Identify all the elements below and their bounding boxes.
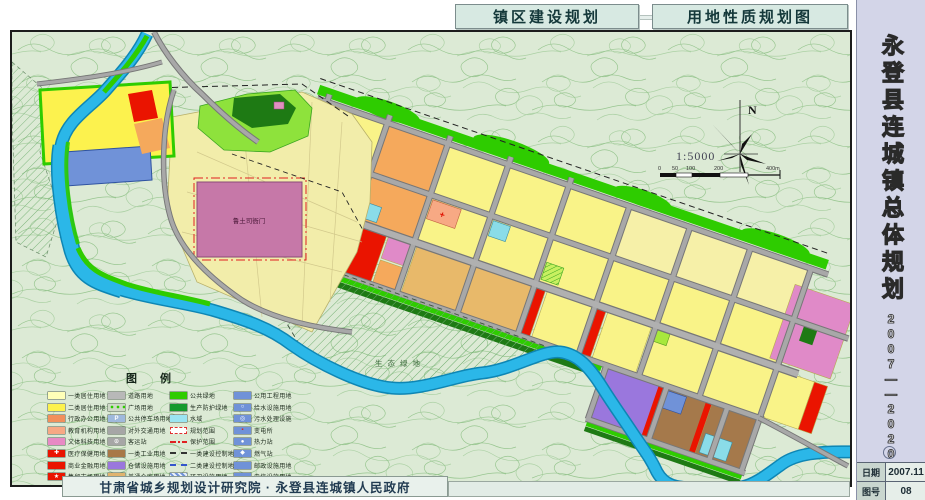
legend-column-3: 公共绿地生产防护绿地水域规划范围保护范围一类建设控制地带二类建设控制地带环卫设施… [170, 392, 240, 485]
legend-swatch [170, 427, 187, 434]
sheet-number-value: 08 [886, 482, 925, 500]
legend-item-label: 客运站 [128, 437, 147, 446]
legend-item: 保护范围 [170, 438, 240, 445]
legend-swatch [48, 404, 65, 411]
legend-item: ○给水设施用地 [234, 404, 311, 411]
legend-swatch [108, 427, 125, 434]
legend-swatch-icon: ★ [54, 474, 59, 480]
title-left-box: 镇区建设规划 [455, 4, 639, 29]
legend-item-label: 水域 [190, 414, 203, 423]
legend-swatch [108, 450, 125, 457]
legend-item-label: 燃气站 [254, 449, 273, 458]
date-label: 日期 [857, 463, 886, 481]
legend-item-label: 文体科技用地 [68, 437, 106, 446]
legend-swatch: ✚ [48, 450, 65, 457]
title-right-box: 用地性质规划图 [652, 4, 848, 29]
legend-swatch [48, 462, 65, 469]
legend-item: 行政办公用地 [48, 415, 106, 422]
legend-item-label: 仓储设施用地 [128, 461, 166, 470]
legend-item: 一类居住用地 [48, 392, 106, 399]
north-label: N [748, 103, 757, 117]
svg-text:200: 200 [714, 166, 723, 172]
svg-text:0: 0 [658, 166, 661, 172]
legend-swatch [108, 392, 125, 399]
legend-swatch: ◎ [234, 415, 251, 422]
legend-item: 水域 [170, 415, 240, 422]
legend-swatch [48, 427, 65, 434]
legend-swatch [170, 392, 187, 399]
legend-item-label: 二类建设控制地带 [190, 461, 240, 470]
legend-swatch-icon: ◆ [240, 450, 245, 456]
legend-item-label: 邮政设施用地 [254, 461, 292, 470]
legend-item-label: 一类建设控制地带 [190, 449, 240, 458]
registration-mark: + [883, 446, 896, 459]
side-panel: 永登县连城镇总体规划 2007——2020 + 日期 2007.11 图号 08 [856, 0, 925, 500]
legend-swatch [234, 392, 251, 399]
legend-item: 邮政设施用地 [234, 462, 311, 469]
legend-swatch-icon: ▪ [241, 427, 243, 433]
legend-item: 生产防护绿地 [170, 404, 240, 411]
legend-item: P公共停车场用地 [108, 415, 172, 422]
legend-swatch: ◆ [234, 450, 251, 457]
map-frame: + [10, 30, 852, 487]
legend-item: 文体科技用地 [48, 438, 106, 445]
legend-item-label: 热力站 [254, 437, 273, 446]
sheet-number-label: 图号 [857, 482, 886, 500]
svg-text:50: 50 [672, 166, 678, 172]
legend-swatch [108, 404, 125, 411]
heritage-site-label: 鲁土司衙门 [233, 216, 266, 225]
legend-item: 商业金融用地 [48, 462, 106, 469]
legend-swatch [170, 464, 187, 466]
sheet-number-row: 图号 08 [857, 481, 925, 500]
plan-sheet: + [0, 0, 925, 500]
legend-item-label: 道路用地 [128, 391, 153, 400]
legend-item: 对外交通用地 [108, 427, 172, 434]
legend-item-label: 医疗保健用地 [68, 449, 106, 458]
legend-item: 广场用地 [108, 404, 172, 411]
scale-text: 1:5000 [676, 149, 715, 163]
legend-item: 一类工业用地 [108, 450, 172, 457]
legend-swatch [170, 452, 187, 454]
legend-item: ●热力站 [234, 438, 311, 445]
legend-item-label: 污水处理设施 [254, 414, 292, 423]
legend-swatch: P [108, 415, 125, 422]
legend-item-label: 变电所 [254, 426, 273, 435]
legend-item: 公共绿地 [170, 392, 240, 399]
legend-item: 规划范围 [170, 427, 240, 434]
legend-item-label: 行政办公用地 [68, 414, 106, 423]
legend-item: ◆燃气站 [234, 450, 311, 457]
legend-swatch-icon: ⊙ [114, 439, 119, 445]
legend-swatch-icon: ● [241, 439, 245, 445]
legend-swatch [108, 462, 125, 469]
legend-swatch [170, 404, 187, 411]
legend-item-label: 给水设施用地 [254, 403, 292, 412]
date-value: 2007.11 [886, 463, 925, 481]
footer-credit: 甘肃省城乡规划设计研究院 · 永登县连城镇人民政府 [62, 476, 448, 497]
legend-swatch [170, 415, 187, 422]
date-row: 日期 2007.11 [857, 462, 925, 481]
legend-swatch: ⊙ [108, 438, 125, 445]
plan-period-vertical: 2007——2020 [884, 312, 898, 462]
legend-item: 一类建设控制地带 [170, 450, 240, 457]
legend-swatch: ● [234, 438, 251, 445]
legend-column-1: 一类居住用地二类居住用地行政办公用地教育机构用地文体科技用地✚医疗保健用地商业金… [48, 392, 106, 485]
legend-item-label: 二类居住用地 [68, 403, 106, 412]
legend-swatch [48, 392, 65, 399]
legend-item-label: 公共绿地 [190, 391, 215, 400]
legend-item: ◎污水处理设施 [234, 415, 311, 422]
legend-item-label: 商业金融用地 [68, 461, 106, 470]
legend-item: 二类居住用地 [48, 404, 106, 411]
legend-item-label: 教育机构用地 [68, 426, 106, 435]
legend-item-label: 生产防护绿地 [190, 403, 228, 412]
legend-item: 教育机构用地 [48, 427, 106, 434]
legend-item: ⊙客运站 [108, 438, 172, 445]
legend-item-label: 一类居住用地 [68, 391, 106, 400]
legend-item: 仓储设施用地 [108, 462, 172, 469]
legend-item-label: 广场用地 [128, 403, 153, 412]
legend-item: 公用工程用地 [234, 392, 311, 399]
svg-text:400m: 400m [766, 166, 780, 172]
legend-swatch [234, 462, 251, 469]
legend-swatch-icon: ◎ [240, 416, 245, 422]
plan-title-vertical: 永登县连城镇总体规划 [875, 34, 907, 304]
legend-item-label: 对外交通用地 [128, 426, 166, 435]
legend-swatch [170, 441, 187, 443]
legend-title: 图 例 [126, 370, 181, 386]
legend-column-2: 道路用地广场用地P公共停车场用地对外交通用地⊙客运站一类工业用地仓储设施用地普通… [108, 392, 172, 485]
svg-text:100: 100 [686, 166, 695, 172]
legend-swatch: ▪ [234, 427, 251, 434]
legend-item-label: 公用工程用地 [254, 391, 292, 400]
legend-item-label: 规划范围 [190, 426, 215, 435]
legend-item-label: 公共停车场用地 [128, 414, 172, 423]
legend-swatch [48, 438, 65, 445]
legend-item: ✚医疗保健用地 [48, 450, 106, 457]
legend-item-label: 保护范围 [190, 437, 215, 446]
legend-item: 道路用地 [108, 392, 172, 399]
legend-item-label: 一类工业用地 [128, 449, 166, 458]
legend-swatch-icon: P [114, 416, 118, 422]
legend-swatch-icon: ○ [241, 404, 245, 410]
footer-strip [448, 481, 850, 497]
legend-item: ▪变电所 [234, 427, 311, 434]
legend-item: 二类建设控制地带 [170, 462, 240, 469]
eco-green-label: 生态绿地 [375, 358, 425, 368]
legend-swatch-icon: ✚ [54, 450, 59, 456]
legend-swatch [48, 415, 65, 422]
legend-swatch: ○ [234, 404, 251, 411]
